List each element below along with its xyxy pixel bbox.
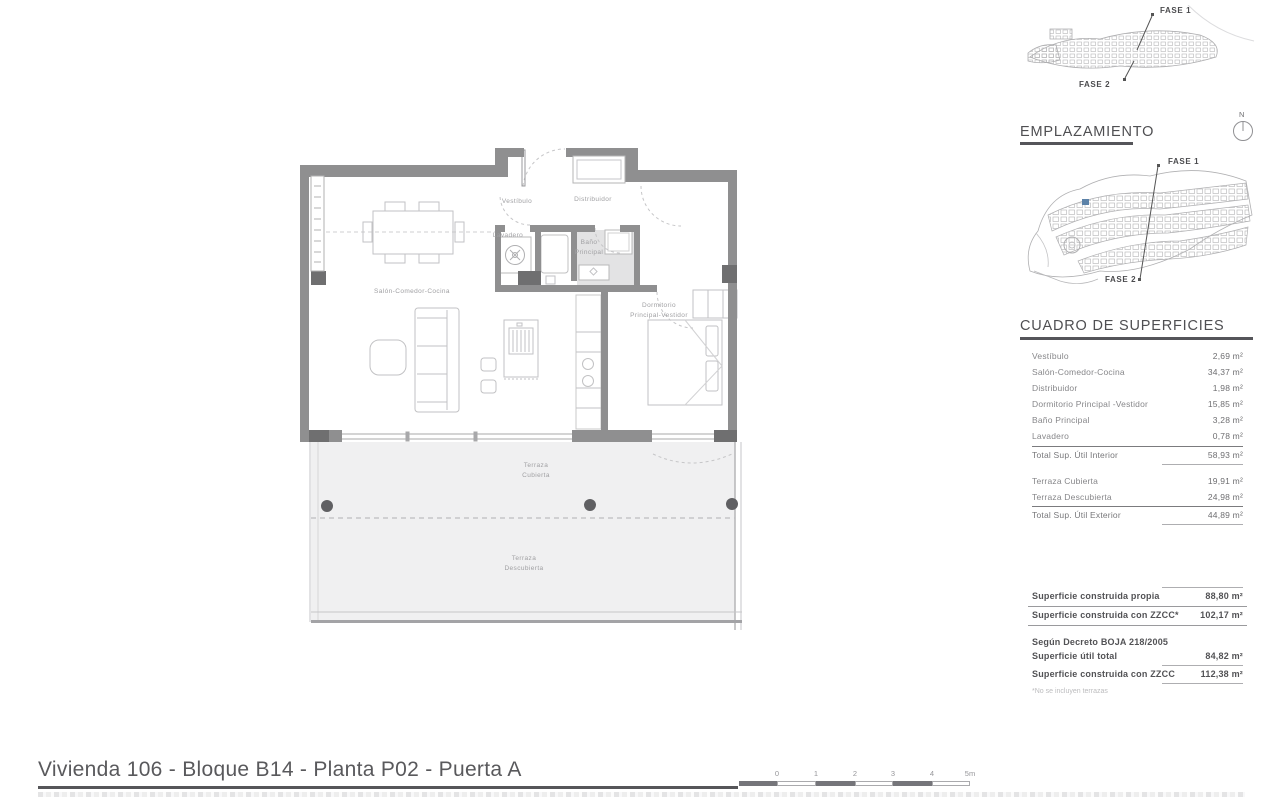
row-value: 3,28 m² — [1213, 415, 1243, 425]
row-label: Superficie construida con ZZCC — [1032, 669, 1175, 679]
disclaimer-strip — [38, 792, 1245, 797]
scale-tick-label: 3 — [882, 769, 904, 778]
walls-layer — [300, 148, 737, 442]
scale-segment — [739, 781, 777, 786]
entry-closet — [573, 156, 625, 183]
bathroom-sink — [579, 265, 609, 280]
scale-segment — [893, 781, 932, 786]
scale-segment — [777, 781, 816, 786]
table-rule — [1032, 506, 1243, 507]
row-label: Terraza Cubierta — [1032, 476, 1098, 486]
fase2-label-plan: FASE 2 — [1105, 275, 1136, 284]
value-overline — [1162, 587, 1243, 588]
north-label: N — [1239, 110, 1244, 119]
row-label: Salón-Comedor-Cocina — [1032, 367, 1125, 377]
row-value: 19,91 m² — [1208, 476, 1243, 486]
row-label: Baño Principal — [1032, 415, 1090, 425]
summary-row: Superficie construida con ZZCC112,38 m² — [1032, 669, 1243, 682]
row-value: 44,89 m² — [1208, 510, 1243, 520]
scale-tick-label: 5m — [959, 769, 981, 778]
scale-segment — [855, 781, 893, 786]
row-value: 84,82 m² — [1205, 651, 1243, 661]
row-value: 24,98 m² — [1208, 492, 1243, 502]
table-row: Lavadero0,78 m² — [1032, 431, 1243, 444]
furniture-layer — [363, 202, 737, 429]
scale-tick-label: 2 — [844, 769, 866, 778]
value-underline — [1162, 665, 1243, 666]
row-label: Vestíbulo — [1032, 351, 1069, 361]
table-total-row: Total Sup. Útil Interior58,93 m² — [1032, 450, 1243, 463]
table-row: Vestíbulo2,69 m² — [1032, 351, 1243, 364]
row-label: Superficie construida con ZZCC* — [1032, 610, 1179, 620]
table-rule — [1032, 446, 1243, 447]
table-row: Baño Principal3,28 m² — [1032, 415, 1243, 428]
bed — [648, 320, 722, 405]
scale-tick-label: 4 — [921, 769, 943, 778]
row-label: Según Decreto BOJA 218/2005 — [1032, 637, 1168, 647]
row-value: 102,17 m² — [1200, 610, 1243, 620]
cuadro-heading: CUADRO DE SUPERFICIES — [1020, 318, 1225, 334]
row-value: 15,85 m² — [1208, 399, 1243, 409]
table-row: Terraza Descubierta24,98 m² — [1032, 492, 1243, 505]
fase1-label-top: FASE 1 — [1160, 6, 1191, 15]
table-row: Salón-Comedor-Cocina34,37 m² — [1032, 367, 1243, 380]
row-value: 34,37 m² — [1208, 367, 1243, 377]
row-label: Dormitorio Principal -Vestidor — [1032, 399, 1148, 409]
scale-segment — [932, 781, 970, 786]
stove-burner — [583, 359, 594, 370]
floor-plan-drawing — [295, 140, 750, 645]
row-label: Lavadero — [1032, 431, 1069, 441]
row-label: Total Sup. Útil Exterior — [1032, 510, 1121, 520]
row-value: 2,69 m² — [1213, 351, 1243, 361]
masterplan-sketch — [1020, 153, 1255, 301]
value-underline — [1162, 683, 1243, 684]
row-label: Terraza Descubierta — [1032, 492, 1112, 502]
row-value: 1,98 m² — [1213, 383, 1243, 393]
summary-row: Superficie construida propia88,80 m² — [1032, 591, 1243, 604]
row-value: 112,38 m² — [1201, 669, 1243, 679]
decreto-heading: Según Decreto BOJA 218/2005 — [1032, 637, 1243, 650]
table-row: Distribuidor1,98 m² — [1032, 383, 1243, 396]
row-label: Total Sup. Útil Interior — [1032, 450, 1118, 460]
scale-tick-label: 1 — [805, 769, 827, 778]
fase1-label-plan: FASE 1 — [1168, 157, 1199, 166]
armchair — [370, 340, 406, 375]
summary-row: Superficie útil total84,82 m² — [1032, 651, 1243, 664]
row-value: 0,78 m² — [1213, 431, 1243, 441]
shower-tray — [541, 235, 568, 273]
emplazamiento-rule — [1020, 142, 1133, 145]
stove-burner — [583, 376, 594, 387]
floor-plan — [295, 140, 750, 645]
unit-location-marker — [1082, 199, 1089, 205]
title-rule — [38, 786, 738, 789]
terrace-area — [310, 442, 742, 630]
row-value: 88,80 m² — [1205, 591, 1243, 601]
table-total-row: Total Sup. Útil Exterior44,89 m² — [1032, 510, 1243, 523]
sheet-title: Vivienda 106 - Bloque B14 - Planta P02 -… — [38, 758, 522, 782]
table-row: Terraza Cubierta19,91 m² — [1032, 476, 1243, 489]
sofa — [415, 308, 459, 412]
row-label: Superficie construida propia — [1032, 591, 1160, 601]
scale-segment — [816, 781, 855, 786]
value-underline — [1162, 464, 1243, 465]
emplazamiento-heading: EMPLAZAMIENTO — [1020, 124, 1154, 140]
plan-sheet: Vestíbulo Distribuidor Lavadero Baño Pri… — [0, 0, 1280, 800]
value-underline — [1162, 524, 1243, 525]
window-shutter — [311, 176, 324, 271]
north-compass-icon — [1232, 120, 1254, 142]
fase2-label-top: FASE 2 — [1079, 80, 1110, 89]
glass-doors — [342, 432, 714, 441]
summary-rule — [1028, 625, 1247, 626]
row-label: Distribuidor — [1032, 383, 1077, 393]
scale-tick-label: 0 — [766, 769, 788, 778]
footnote: *No se incluyen terrazas — [1032, 688, 1108, 695]
aerial-sketch — [1020, 5, 1255, 105]
row-value: 58,93 m² — [1208, 450, 1243, 460]
row-label: Superficie útil total — [1032, 651, 1117, 661]
table-row: Dormitorio Principal -Vestidor15,85 m² — [1032, 399, 1243, 412]
kitchen-counter — [576, 295, 601, 429]
summary-rule — [1028, 606, 1247, 607]
shower — [605, 230, 632, 254]
summary-row: Superficie construida con ZZCC*102,17 m² — [1032, 610, 1243, 623]
cuadro-rule — [1020, 337, 1253, 340]
wc — [546, 276, 555, 284]
